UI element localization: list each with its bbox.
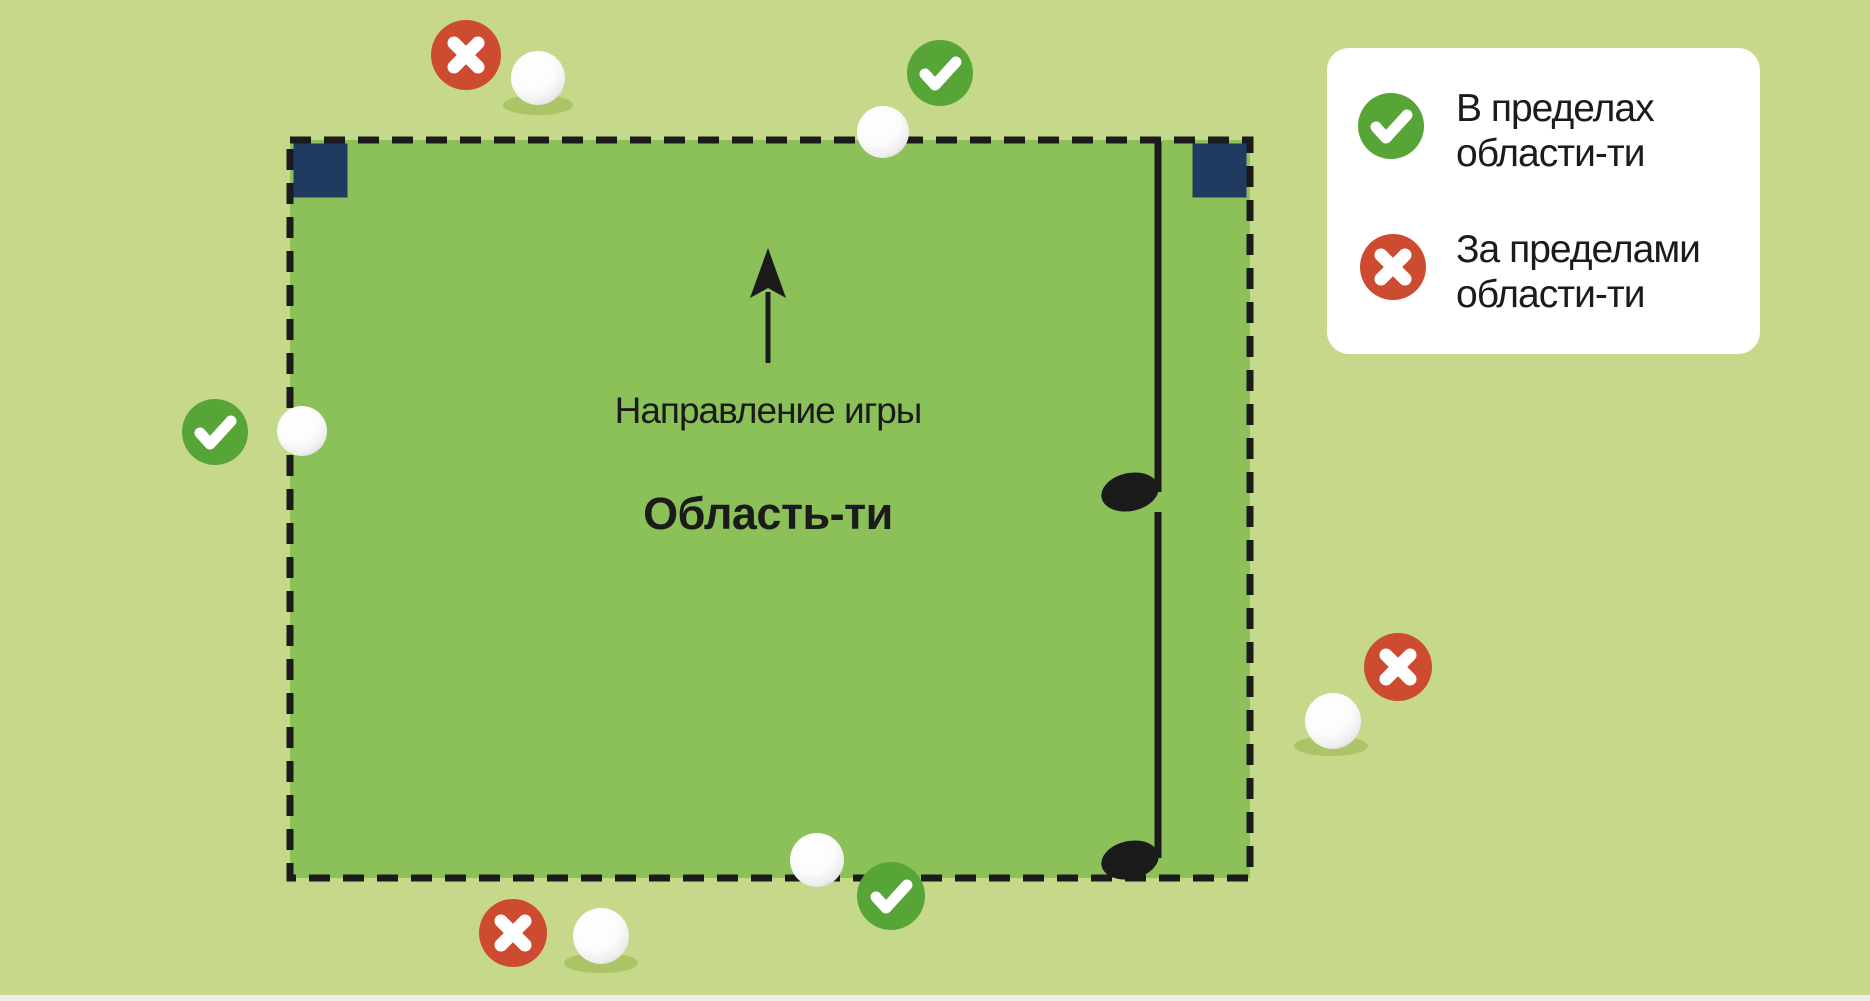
golf-ball-bottom-center-on-line	[790, 833, 844, 887]
check-icon	[182, 399, 248, 465]
check-icon	[857, 862, 925, 930]
direction-of-play-label: Направление игры	[615, 390, 922, 432]
check-icon	[907, 40, 973, 106]
legend-item-outside-line2: области-ти	[1456, 272, 1700, 317]
cross-icon	[431, 20, 501, 90]
golf-ball-top-left-outside	[511, 51, 565, 105]
tee-marker-left	[294, 144, 348, 198]
legend-card: В пределах области-ти За пределами облас…	[1327, 48, 1760, 354]
teeing-area-infographic: Направление игры Область-ти В пределах о…	[0, 0, 1870, 1001]
legend-item-outside: За пределами области-ти	[1456, 227, 1700, 317]
legend-item-outside-line1: За пределами	[1456, 227, 1700, 272]
teeing-area-label: Область-ти	[643, 488, 893, 540]
legend-item-within-line2: области-ти	[1456, 131, 1654, 176]
image-edge-strip	[0, 995, 1870, 1001]
golf-ball-right-outside	[1305, 693, 1361, 749]
legend-item-within: В пределах области-ти	[1456, 86, 1654, 176]
cross-icon	[1359, 233, 1427, 301]
golf-ball-top-center-on-line	[857, 106, 909, 158]
golf-ball-bottom-left-outside	[573, 908, 629, 964]
check-icon	[1357, 92, 1425, 160]
golf-ball-left-edge-on-line	[277, 406, 327, 456]
cross-icon	[479, 899, 547, 967]
legend-item-within-line1: В пределах	[1456, 86, 1654, 131]
tee-marker-right	[1193, 144, 1247, 198]
cross-icon	[1364, 633, 1432, 701]
